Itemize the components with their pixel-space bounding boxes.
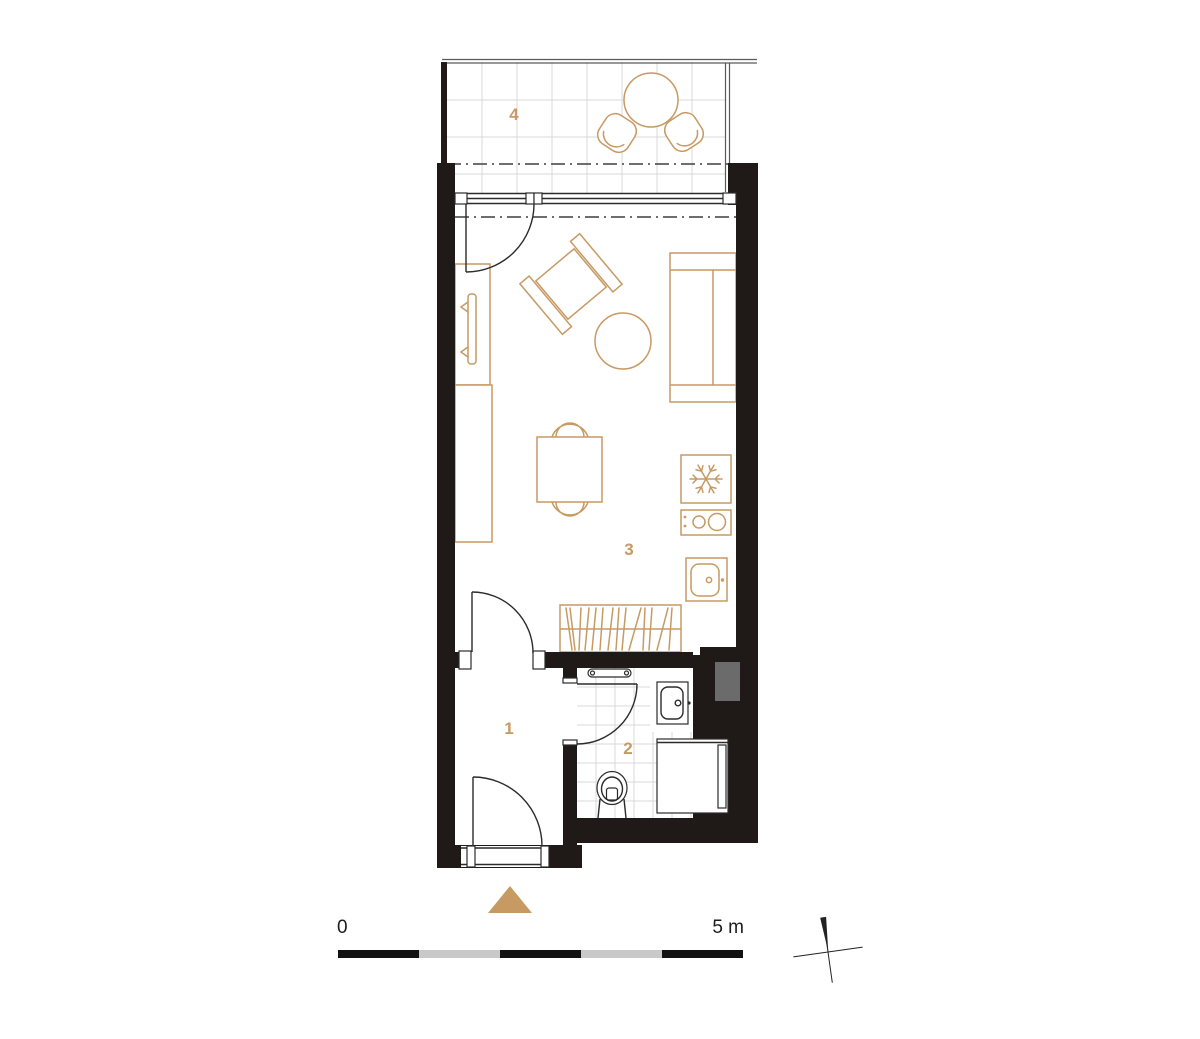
balcony: [442, 60, 757, 194]
dining-chair-top: [552, 423, 588, 437]
room-label-hall: 1: [504, 719, 513, 738]
entrance-marker: [488, 886, 532, 913]
balcony-table: [624, 73, 678, 127]
living-room: [455, 234, 736, 652]
scale-bar: 0 5 m: [337, 917, 744, 958]
room-label-bathroom: 2: [623, 739, 632, 758]
coffee-table: [595, 313, 651, 369]
shaft: [715, 662, 740, 701]
kitchen-sink: [686, 558, 727, 601]
towel-rail: [588, 669, 631, 677]
room-label-balcony: 4: [509, 105, 519, 124]
window-wall: [455, 193, 736, 204]
window-mullion: [455, 193, 467, 204]
bathroom-bottom-wall: [577, 818, 758, 843]
north-arrow-icon: [820, 917, 831, 952]
interior-door: [459, 592, 545, 669]
balcony-side-wall: [441, 62, 447, 164]
right-wall: [736, 204, 758, 655]
sideboard: [455, 385, 492, 542]
north-indicator: [788, 912, 867, 987]
wall-step: [700, 647, 736, 656]
scale-end-label: 5 m: [712, 917, 744, 938]
bathroom-sink: [657, 682, 691, 724]
scale-start-label: 0: [337, 917, 348, 938]
floor-plan: 4 3 1 2 0 5 m: [0, 0, 1200, 1039]
dining-set: [537, 423, 602, 516]
room-label-living: 3: [624, 540, 633, 559]
balcony-door-swing: [466, 204, 534, 272]
entrance-door: [461, 777, 549, 867]
floor-plan-drawing: 4 3 1 2 0 5 m: [0, 0, 1200, 1039]
dining-chair-bottom: [552, 502, 588, 516]
kitchen: [681, 455, 731, 601]
sofa: [670, 253, 736, 402]
dining-table: [537, 437, 602, 502]
left-wall: [437, 163, 455, 868]
window-mullion: [526, 193, 534, 204]
cooktop: [681, 510, 731, 535]
shower: [657, 739, 728, 813]
divider-foot: [563, 818, 577, 848]
window-mullion: [723, 193, 736, 204]
wardrobe: [560, 605, 681, 652]
window-mullion: [534, 193, 542, 204]
